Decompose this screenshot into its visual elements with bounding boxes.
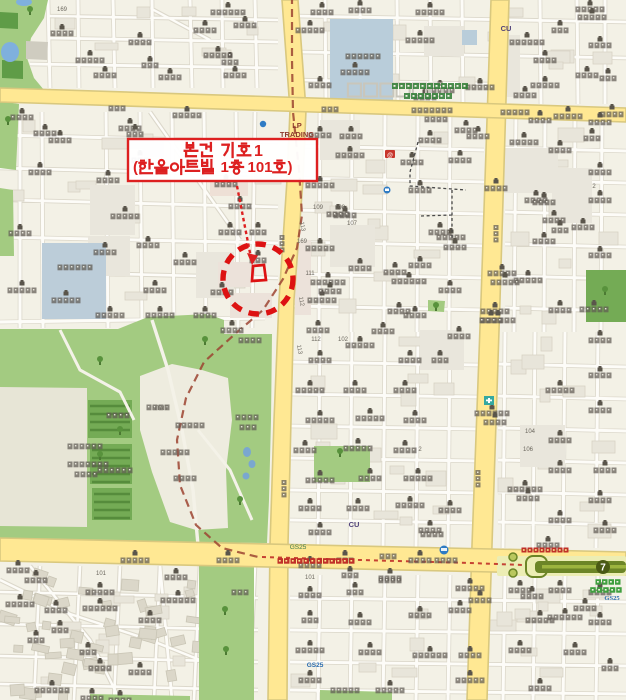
svg-text:@: @ [387,153,393,159]
svg-text:107: 107 [347,221,358,227]
svg-text:104: 104 [525,429,536,435]
svg-text:1: 1 [254,143,263,160]
svg-text:GS25: GS25 [604,595,620,602]
svg-text:112: 112 [311,337,321,343]
svg-text:): ) [288,159,293,176]
svg-text:GS25: GS25 [307,662,324,669]
svg-text:101: 101 [96,571,107,577]
svg-text:169: 169 [57,7,68,13]
svg-text:108: 108 [335,205,346,211]
svg-text:1: 1 [221,159,229,176]
svg-text:109: 109 [313,205,324,211]
svg-text:CU: CU [349,520,360,529]
svg-text:TRADING: TRADING [280,130,314,139]
svg-text:CU: CU [501,24,512,33]
svg-text:102: 102 [338,337,349,343]
svg-text:111: 111 [305,271,315,277]
svg-text:7: 7 [600,563,606,574]
svg-text:101: 101 [248,159,273,176]
svg-text:(: ( [133,159,138,176]
svg-text:101: 101 [305,575,316,581]
svg-text:LP: LP [292,121,302,130]
svg-text:GS25: GS25 [290,544,307,551]
svg-text:HTNT: HTNT [152,406,168,412]
svg-text:169: 169 [297,239,308,245]
svg-text:106: 106 [523,447,534,453]
